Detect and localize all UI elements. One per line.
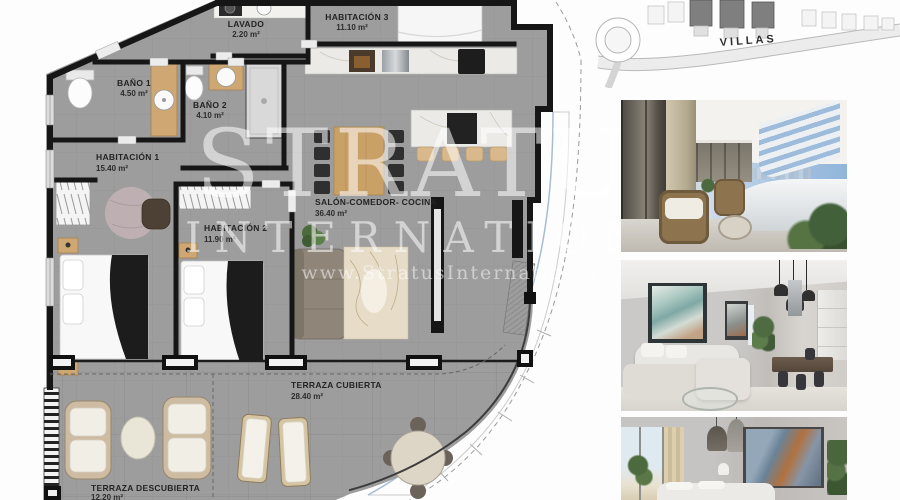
room-area-habitacion3: 11.10 m² bbox=[336, 23, 368, 32]
room-label-bano2: BAÑO 2 bbox=[193, 100, 227, 110]
extractor-hood bbox=[788, 280, 802, 316]
living-rug bbox=[344, 247, 408, 339]
plant bbox=[752, 314, 775, 356]
wicker-sofa bbox=[659, 190, 709, 245]
room-area-lavado: 2.20 m² bbox=[232, 30, 260, 39]
photo-bedroom-render bbox=[621, 417, 847, 500]
room-area-bano2: 4.10 m² bbox=[196, 111, 224, 120]
side-table bbox=[718, 215, 751, 240]
pillow bbox=[666, 345, 686, 359]
art-canvas bbox=[652, 286, 704, 339]
plant bbox=[827, 440, 847, 495]
dining-chair bbox=[778, 371, 788, 387]
pillow bbox=[641, 343, 664, 357]
room-label-bano1: BAÑO 1 bbox=[117, 78, 151, 88]
photo-living-dining-render bbox=[621, 260, 847, 411]
pendant-light bbox=[802, 290, 815, 301]
room-area-terraza-cubierta: 28.40 m² bbox=[291, 392, 323, 401]
dining-chair bbox=[814, 371, 824, 387]
room-label-salon: SALÓN-COMEDOR- COCINA bbox=[315, 196, 437, 207]
pendant-stem bbox=[716, 417, 717, 426]
bed-room3 bbox=[398, 0, 482, 46]
wall-art-small bbox=[725, 301, 748, 340]
wicker-chair bbox=[714, 179, 746, 215]
pendant-stem bbox=[779, 260, 780, 284]
pillow bbox=[666, 482, 693, 490]
kitchen-counter bbox=[305, 48, 517, 74]
room-area-bano1: 4.50 m² bbox=[120, 89, 148, 98]
room-area-salon: 36.40 m² bbox=[315, 209, 347, 218]
pendant-light bbox=[707, 426, 727, 451]
pendant-stem bbox=[806, 260, 807, 290]
floor-plan: LAVADO 2.20 m² HABITACIÓN 3 11.10 m² BAÑ… bbox=[0, 0, 620, 500]
art-canvas bbox=[746, 429, 821, 486]
living-sofa bbox=[292, 249, 346, 339]
palm-view bbox=[623, 454, 652, 491]
wall-art bbox=[743, 427, 824, 488]
greenery bbox=[779, 200, 847, 249]
art-canvas bbox=[727, 304, 746, 336]
room-label-terraza-descubierta: TERRAZA DESCUBIERTA bbox=[91, 483, 200, 493]
pillow bbox=[698, 481, 725, 489]
photo-terrace-render bbox=[621, 100, 847, 252]
kitchen-cabinets bbox=[817, 290, 847, 359]
coffee-table bbox=[682, 387, 738, 411]
wall-art-large bbox=[648, 283, 707, 343]
dining-chair bbox=[805, 348, 815, 360]
room-label-habitacion1: HABITACIÓN 1 bbox=[96, 151, 159, 162]
room-label-terraza-cubierta: TERRAZA CUBIERTA bbox=[291, 380, 382, 390]
pendant-light-small bbox=[718, 463, 729, 475]
dining-chair bbox=[796, 374, 806, 390]
room-label-habitacion2: HABITACIÓN 2 bbox=[204, 222, 267, 233]
pendant-light bbox=[774, 284, 788, 296]
room-label-habitacion3: HABITACIÓN 3 bbox=[325, 11, 388, 22]
room-area-habitacion2: 11.90 m² bbox=[204, 235, 236, 244]
site-map: VILLAS bbox=[570, 0, 900, 88]
terrace-railing bbox=[44, 388, 61, 500]
room-area-terraza-descubierta: 12.20 m² bbox=[91, 493, 123, 500]
dining-table bbox=[772, 357, 833, 372]
cushion bbox=[665, 198, 703, 219]
brochure-page: LAVADO 2.20 m² HABITACIÓN 3 11.10 m² BAÑ… bbox=[0, 0, 900, 500]
room-label-lavado: LAVADO bbox=[228, 19, 265, 29]
room-area-habitacion1: 15.40 m² bbox=[96, 164, 128, 173]
